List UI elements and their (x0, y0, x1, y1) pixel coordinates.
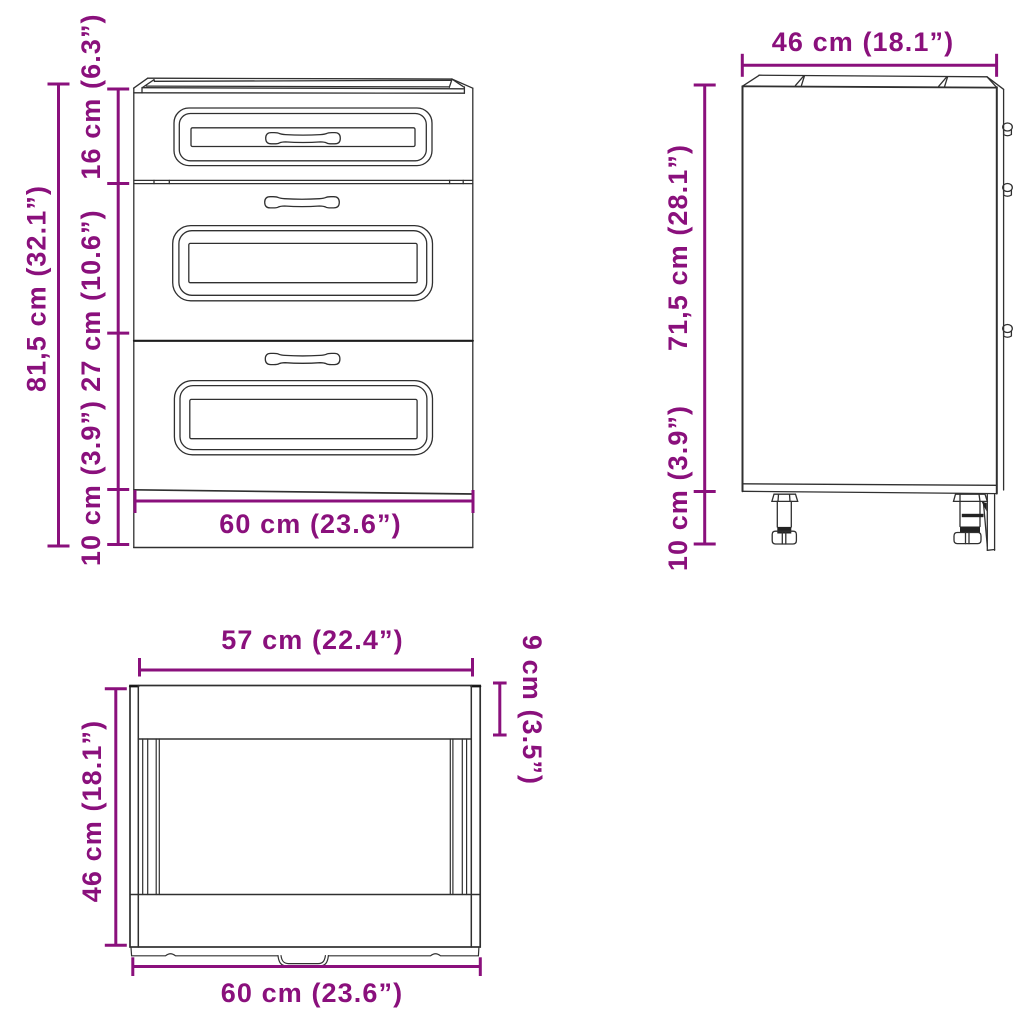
svg-text:10 cm (3.9”): 10 cm (3.9”) (663, 405, 693, 571)
svg-text:60 cm (23.6”): 60 cm (23.6”) (221, 978, 403, 1008)
svg-text:71,5 cm (28.1”): 71,5 cm (28.1”) (663, 144, 693, 351)
svg-text:9 cm (3.5”): 9 cm (3.5”) (517, 635, 547, 785)
svg-text:57 cm (22.4”): 57 cm (22.4”) (221, 625, 403, 655)
svg-text:60 cm (23.6”): 60 cm (23.6”) (219, 509, 401, 539)
svg-text:81,5 cm (32.1”): 81,5 cm (32.1”) (22, 185, 52, 392)
svg-text:27 cm (10.6”): 27 cm (10.6”) (76, 209, 106, 391)
svg-text:10 cm (3.9”): 10 cm (3.9”) (76, 400, 106, 566)
svg-text:16 cm (6.3”): 16 cm (6.3”) (76, 13, 106, 179)
svg-text:46 cm (18.1”): 46 cm (18.1”) (77, 720, 107, 902)
svg-text:46 cm (18.1”): 46 cm (18.1”) (772, 27, 954, 57)
